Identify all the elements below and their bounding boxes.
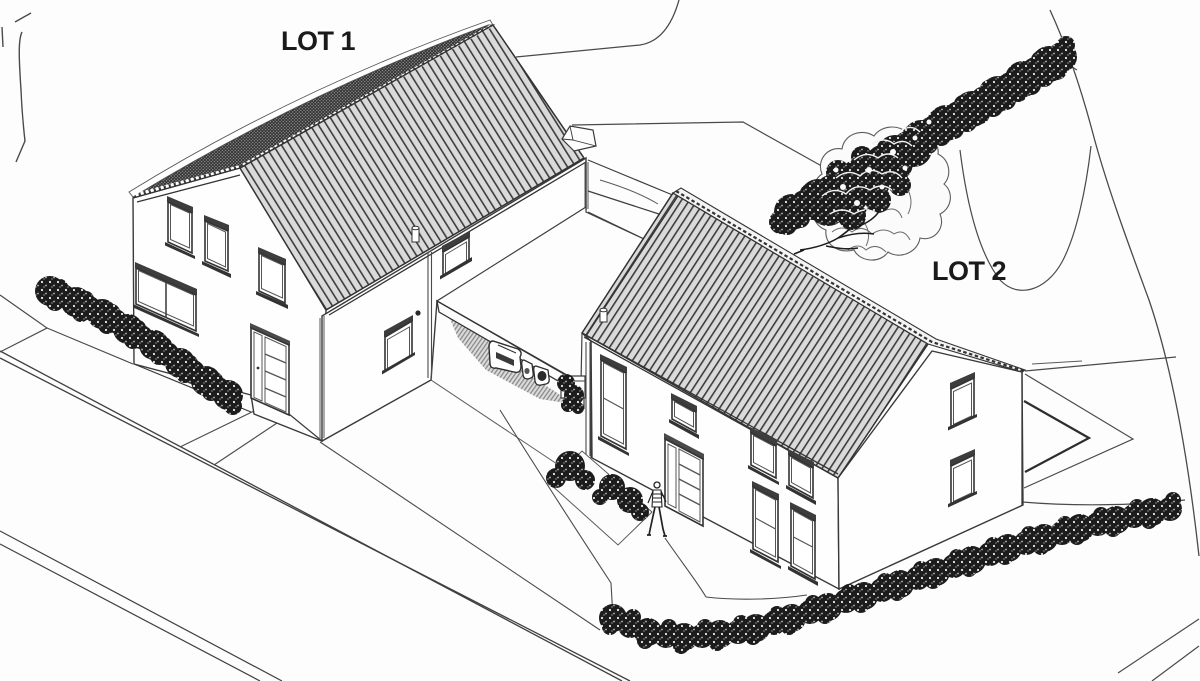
svg-text:LOT 2: LOT 2 [932,256,1006,286]
svg-text:LOT 1: LOT 1 [281,26,355,56]
